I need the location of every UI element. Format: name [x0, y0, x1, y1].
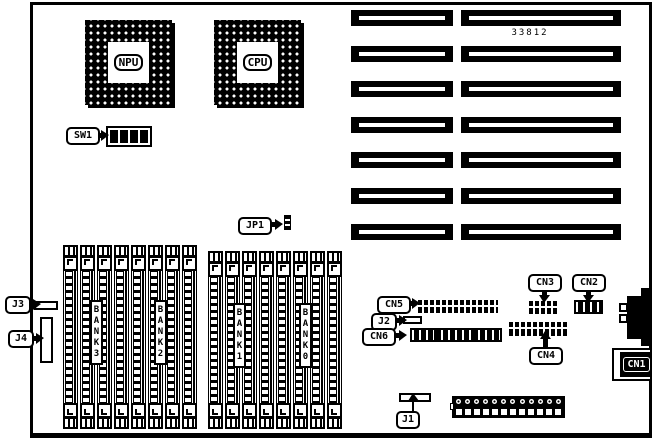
- simm-pin-ticks: [321, 277, 323, 403]
- cn2-label: CN2: [572, 274, 606, 292]
- simm-socket: [63, 245, 78, 429]
- simm-socket-bottom-cap: [114, 403, 129, 417]
- npu-label: NPU: [114, 54, 144, 71]
- simm-socket-bottom-cap: [293, 403, 308, 417]
- bank3-label: BANK3: [90, 300, 103, 365]
- power-pin-round: [456, 399, 461, 404]
- power-pin-round: [483, 399, 488, 404]
- j1-label: J1: [396, 411, 420, 429]
- simm-socket-top-cap: [63, 257, 78, 271]
- npu-chip: NPU: [85, 20, 172, 105]
- simm-pin-ticks: [219, 277, 221, 403]
- power-pin-row-bottom: [456, 409, 561, 415]
- power-pin-square: [456, 409, 462, 415]
- power-pin-square: [528, 409, 534, 415]
- expansion-slot: [461, 81, 621, 97]
- simm-socket-bottom-bar: [208, 417, 223, 429]
- simm-socket-top-bar: [293, 251, 308, 263]
- simm-socket-bottom-bar: [293, 417, 308, 429]
- jp1-label: JP1: [238, 217, 272, 235]
- simm-pin-ticks: [74, 271, 76, 403]
- cn6-pin-group: [441, 330, 471, 340]
- expansion-slot: [461, 152, 621, 168]
- expansion-slot: [461, 46, 621, 62]
- simm-socket-body: [327, 277, 342, 403]
- simm-socket-top-cap: [182, 257, 197, 271]
- simm-pin-ticks: [142, 271, 144, 403]
- simm-socket-top-bar: [225, 251, 240, 263]
- simm-socket: [131, 245, 146, 429]
- expansion-slot: [461, 10, 621, 26]
- power-connector: [452, 396, 565, 418]
- simm-socket-bottom-bar: [131, 417, 146, 429]
- keyboard-din-pin: [619, 303, 628, 312]
- simm-socket-top-cap: [97, 257, 112, 271]
- simm-socket: [165, 245, 180, 429]
- cn6-header: [410, 328, 502, 342]
- simm-socket-bottom-cap: [276, 403, 291, 417]
- expansion-slot: [351, 152, 453, 168]
- j4-label: J4: [8, 330, 34, 348]
- j1-pointer: [412, 401, 414, 411]
- jp1-jumper: [284, 215, 291, 230]
- simm-socket-bottom-bar: [97, 417, 112, 429]
- simm-socket-bottom-cap: [225, 403, 240, 417]
- simm-socket-top-bar: [80, 245, 95, 257]
- simm-socket-top-cap: [131, 257, 146, 271]
- simm-socket-body: [182, 271, 197, 403]
- cn6-label: CN6: [362, 328, 396, 346]
- npu-chip-body: NPU: [108, 42, 149, 83]
- simm-socket-bottom-cap: [259, 403, 274, 417]
- simm-socket-top-bar: [242, 251, 257, 263]
- simm-pin-ladder: [167, 271, 175, 403]
- simm-socket-body: [310, 277, 325, 403]
- power-pin-square: [465, 409, 471, 415]
- power-pin-square: [474, 409, 480, 415]
- simm-socket-top-bar: [182, 245, 197, 257]
- simm-socket-bottom-cap: [208, 403, 223, 417]
- simm-socket-body: [276, 277, 291, 403]
- bank2-label: BANK2: [154, 300, 167, 365]
- power-pin-round: [510, 399, 515, 404]
- dip-switch-segment: [120, 130, 128, 143]
- power-pin-square: [501, 409, 507, 415]
- simm-pin-ticks: [176, 271, 178, 403]
- expansion-slot-column-left: [351, 10, 453, 259]
- keyboard-din-connector: [627, 296, 652, 339]
- board-part-number: 33812: [490, 28, 570, 38]
- bank1-label: BANK1: [233, 303, 246, 368]
- simm-socket-top-bar: [327, 251, 342, 263]
- simm-socket-top-cap: [225, 263, 240, 277]
- cpu-chip: CPU: [214, 20, 301, 105]
- simm-socket-bottom-cap: [310, 403, 325, 417]
- cn5-header: [416, 300, 498, 313]
- cn6-pin-group: [478, 330, 500, 340]
- simm-socket-top-cap: [80, 257, 95, 271]
- keyboard-din-flange-top: [641, 288, 652, 297]
- simm-pin-ladder: [184, 271, 192, 403]
- cn3-label: CN3: [528, 274, 562, 292]
- expansion-slot: [351, 81, 453, 97]
- power-pin-round: [529, 399, 534, 404]
- simm-socket-top-bar: [165, 245, 180, 257]
- simm-socket-top-cap: [259, 263, 274, 277]
- simm-socket: [310, 251, 325, 429]
- simm-pin-ladder: [116, 271, 124, 403]
- simm-pin-ladder: [329, 277, 337, 403]
- simm-socket: [327, 251, 342, 429]
- simm-socket-bottom-cap: [63, 403, 78, 417]
- simm-socket-top-cap: [148, 257, 163, 271]
- simm-socket-body: [114, 271, 129, 403]
- simm-pin-ladder: [261, 277, 269, 403]
- cn5-label: CN5: [377, 296, 411, 314]
- simm-pin-ladder: [312, 277, 320, 403]
- simm-socket-top-bar: [63, 245, 78, 257]
- simm-socket-bottom-cap: [131, 403, 146, 417]
- simm-socket-bottom-cap: [182, 403, 197, 417]
- power-pin-square: [555, 409, 561, 415]
- dip-switch-segment: [110, 130, 118, 143]
- simm-socket-bottom-bar: [242, 417, 257, 429]
- power-pin-row-top: [456, 399, 561, 404]
- cn4-header: [507, 322, 568, 336]
- simm-pin-ticks: [125, 271, 127, 403]
- expansion-slot: [461, 224, 621, 240]
- simm-socket: [276, 251, 291, 429]
- simm-pin-ladder: [65, 271, 73, 403]
- simm-pin-ladder: [278, 277, 286, 403]
- power-pin-square: [546, 409, 552, 415]
- simm-socket-bottom-bar: [80, 417, 95, 429]
- keyboard-din-flange-bottom: [641, 338, 652, 346]
- bank0-label: BANK0: [299, 303, 312, 368]
- simm-socket: [208, 251, 223, 429]
- sw1-label: SW1: [66, 127, 100, 145]
- simm-group-right: [208, 251, 342, 429]
- simm-socket-bottom-cap: [148, 403, 163, 417]
- expansion-slot-column-right: [461, 10, 621, 259]
- simm-pin-ticks: [338, 277, 340, 403]
- simm-socket-body: [259, 277, 274, 403]
- simm-socket-bottom-bar: [225, 417, 240, 429]
- power-pin-square: [492, 409, 498, 415]
- simm-socket-top-cap: [165, 257, 180, 271]
- simm-socket-bottom-cap: [97, 403, 112, 417]
- simm-socket-bottom-bar: [259, 417, 274, 429]
- expansion-slot: [461, 188, 621, 204]
- simm-pin-ticks: [287, 277, 289, 403]
- expansion-slot: [351, 10, 453, 26]
- power-connector-notch: [450, 403, 454, 410]
- cn6-pin-group: [412, 330, 434, 340]
- simm-pin-ticks: [193, 271, 195, 403]
- simm-socket-top-bar: [114, 245, 129, 257]
- simm-socket-top-cap: [208, 263, 223, 277]
- simm-socket: [114, 245, 129, 429]
- expansion-slot: [351, 188, 453, 204]
- simm-socket-top-cap: [114, 257, 129, 271]
- simm-socket-top-bar: [148, 245, 163, 257]
- expansion-slot: [461, 117, 621, 133]
- simm-socket-bottom-bar: [310, 417, 325, 429]
- simm-socket: [182, 245, 197, 429]
- power-pin-round: [465, 399, 470, 404]
- simm-group-left: [63, 245, 197, 429]
- expansion-slot: [351, 117, 453, 133]
- simm-socket-top-cap: [327, 263, 342, 277]
- expansion-slot: [351, 46, 453, 62]
- simm-socket-bottom-bar: [182, 417, 197, 429]
- simm-socket-bottom-bar: [148, 417, 163, 429]
- simm-socket-top-bar: [97, 245, 112, 257]
- dip-switch-segment: [140, 130, 148, 143]
- power-pin-round: [520, 399, 525, 404]
- simm-socket-top-cap: [310, 263, 325, 277]
- power-pin-square: [519, 409, 525, 415]
- simm-pin-ladder: [210, 277, 218, 403]
- simm-socket-bottom-bar: [114, 417, 129, 429]
- simm-socket-body: [165, 271, 180, 403]
- simm-socket: [259, 251, 274, 429]
- simm-socket-top-bar: [131, 245, 146, 257]
- simm-socket-bottom-bar: [63, 417, 78, 429]
- j3-label: J3: [5, 296, 31, 314]
- power-pin-round: [474, 399, 479, 404]
- power-pin-square: [483, 409, 489, 415]
- power-pin-square: [510, 409, 516, 415]
- simm-pin-ticks: [270, 277, 272, 403]
- simm-socket-bottom-cap: [165, 403, 180, 417]
- simm-socket-bottom-cap: [80, 403, 95, 417]
- simm-pin-ticks: [253, 277, 255, 403]
- simm-socket-top-bar: [310, 251, 325, 263]
- dip-switch-segment: [130, 130, 138, 143]
- simm-socket-top-cap: [276, 263, 291, 277]
- simm-socket-bottom-bar: [327, 417, 342, 429]
- simm-socket-top-bar: [208, 251, 223, 263]
- cpu-label: CPU: [243, 54, 273, 71]
- power-pin-round: [547, 399, 552, 404]
- cn4-label: CN4: [529, 347, 563, 365]
- power-pin-round: [538, 399, 543, 404]
- keyboard-din-pin: [619, 314, 628, 323]
- cpu-chip-body: CPU: [237, 42, 278, 83]
- power-pin-round: [556, 399, 561, 404]
- simm-socket-top-cap: [293, 263, 308, 277]
- power-pin-round: [501, 399, 506, 404]
- simm-socket-bottom-cap: [242, 403, 257, 417]
- simm-socket-top-cap: [242, 263, 257, 277]
- simm-socket-bottom-bar: [165, 417, 180, 429]
- simm-socket-top-bar: [276, 251, 291, 263]
- simm-pin-ladder: [82, 271, 90, 403]
- simm-socket-top-bar: [259, 251, 274, 263]
- simm-socket-body: [208, 277, 223, 403]
- simm-socket-body: [131, 271, 146, 403]
- simm-pin-ticks: [108, 271, 110, 403]
- simm-socket-bottom-cap: [327, 403, 342, 417]
- power-pin-square: [537, 409, 543, 415]
- simm-socket-bottom-bar: [276, 417, 291, 429]
- expansion-slot: [351, 224, 453, 240]
- simm-pin-ladder: [133, 271, 141, 403]
- cn1-label: CN1: [623, 357, 650, 372]
- sw1-dip-switch: [106, 126, 152, 147]
- simm-socket-body: [63, 271, 78, 403]
- power-pin-round: [492, 399, 497, 404]
